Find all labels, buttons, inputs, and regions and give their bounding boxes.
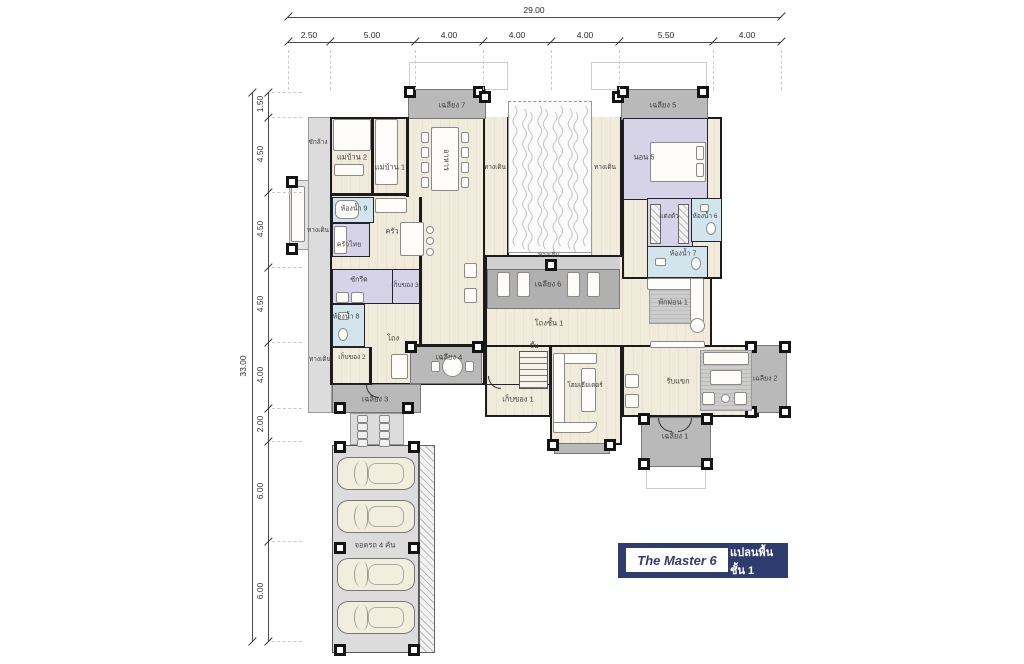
pool-corridor-left-floor bbox=[483, 117, 509, 257]
dining-chair bbox=[461, 162, 469, 173]
label-stairs-up: ขึ้น bbox=[530, 344, 539, 351]
title-plan-label: แปลนพื้นชั้น 1 bbox=[730, 543, 788, 578]
grid-guide bbox=[272, 408, 302, 409]
washer bbox=[336, 292, 349, 303]
room-storage2 bbox=[332, 347, 371, 385]
label-walkway-pool-left: ทางเดิน bbox=[484, 165, 506, 172]
label-bath9: ห้องน้ำ 9 bbox=[341, 206, 368, 213]
column bbox=[479, 91, 491, 103]
column bbox=[334, 402, 346, 414]
living-console bbox=[650, 341, 705, 348]
column bbox=[697, 86, 709, 98]
grid-guide bbox=[272, 342, 302, 343]
top-dim-seg-4: 4.00 bbox=[509, 30, 526, 40]
grid-guide bbox=[272, 92, 302, 93]
kitchen-island bbox=[400, 222, 424, 256]
pillow-bedroom5 bbox=[696, 146, 704, 160]
stepping-stone bbox=[357, 431, 368, 439]
roof-outline-left bbox=[409, 62, 508, 90]
stepping-stone bbox=[379, 431, 390, 439]
car-1 bbox=[337, 457, 415, 490]
top-dim-seg-3: 4.00 bbox=[441, 30, 458, 40]
room-bath8 bbox=[332, 304, 365, 347]
label-hall1: โถงชั้น 1 bbox=[535, 319, 564, 327]
porch4-chair bbox=[465, 361, 474, 372]
column bbox=[402, 402, 414, 414]
column bbox=[604, 439, 616, 451]
stepping-stone bbox=[357, 423, 368, 431]
hall-armchair bbox=[464, 288, 477, 303]
grid-guide bbox=[415, 50, 416, 90]
kitchen-stool bbox=[426, 226, 434, 234]
lounge-chair bbox=[517, 272, 530, 297]
wall-maid-partition-2 bbox=[406, 117, 409, 197]
toilet-bath8 bbox=[338, 328, 348, 341]
label-porch2: เฉลียง 2 bbox=[753, 376, 778, 383]
grid-guide bbox=[713, 50, 714, 90]
label-walkway-left-upper: ทางเดิน bbox=[307, 228, 329, 235]
grid-guide bbox=[272, 192, 302, 193]
top-dim-seg-1: 2.50 bbox=[301, 30, 318, 40]
label-bed5: นอน 5 bbox=[633, 153, 654, 161]
toilet-bath7 bbox=[691, 257, 701, 270]
sink-bath6 bbox=[700, 204, 709, 212]
staircase bbox=[519, 351, 548, 389]
label-storage3: เก็บของ 3 bbox=[391, 283, 418, 290]
label-porch7: เฉลียง 7 bbox=[439, 101, 466, 109]
floor-plan-canvas: 29.00 2.50 5.00 4.00 4.00 4.00 5.50 4.00… bbox=[0, 0, 1024, 664]
column bbox=[779, 341, 791, 353]
wall-maid-bottom bbox=[330, 193, 408, 196]
side-corridor bbox=[308, 117, 332, 413]
dining-chair bbox=[421, 177, 429, 188]
dining-chair bbox=[461, 147, 469, 158]
label-relax1: พักผ่อน 1 bbox=[658, 298, 688, 306]
grid-guide bbox=[272, 541, 302, 542]
label-storage1: เก็บของ 1 bbox=[502, 395, 533, 403]
living-sofa bbox=[703, 352, 749, 365]
column bbox=[408, 542, 420, 554]
label-ironing: ซักรีด bbox=[350, 277, 367, 284]
wall-storage2-side bbox=[369, 347, 372, 385]
stepping-stone bbox=[379, 423, 390, 431]
left-dim-seg-1: 1.50 bbox=[255, 96, 265, 113]
living-armchair bbox=[702, 392, 715, 405]
column bbox=[408, 644, 420, 656]
ht-sofa-bottom bbox=[553, 422, 597, 433]
left-dim-seg-6: 2.00 bbox=[255, 416, 265, 433]
home-theater-bay bbox=[554, 443, 610, 454]
label-porch6: เฉลียง 6 bbox=[535, 280, 562, 288]
column bbox=[405, 341, 417, 353]
hall-desk bbox=[391, 354, 408, 379]
garage-hatch-strip bbox=[419, 445, 435, 653]
title-name: The Master 6 bbox=[626, 548, 728, 572]
stepping-stone bbox=[379, 415, 390, 423]
car-3 bbox=[337, 558, 415, 591]
label-bath8: ห้องน้ำ 8 bbox=[333, 314, 360, 321]
grid-guide bbox=[781, 50, 782, 90]
grid-guide bbox=[483, 50, 484, 90]
label-pantry: ครัว bbox=[385, 227, 398, 235]
wall-maid-partition-1 bbox=[371, 117, 374, 195]
hall-armchair bbox=[464, 263, 477, 278]
roof-outline-right bbox=[591, 62, 707, 90]
title-block: The Master 6 แปลนพื้นชั้น 1 bbox=[618, 543, 788, 578]
column bbox=[701, 458, 713, 470]
column bbox=[334, 441, 346, 453]
column bbox=[334, 644, 346, 656]
top-dim-seg-6: 5.50 bbox=[658, 30, 675, 40]
wardrobe bbox=[650, 204, 661, 244]
dresser-maid2 bbox=[334, 164, 364, 176]
kitchen-stool bbox=[426, 237, 434, 245]
top-segment-dim-line bbox=[288, 42, 781, 43]
label-home-theater: โฮมเธียเตอร์ bbox=[567, 383, 603, 390]
living-armchair bbox=[734, 392, 747, 405]
relax-sofa-end bbox=[690, 318, 705, 333]
outdoor-counter bbox=[291, 186, 305, 242]
label-dressing: แต่งตัว bbox=[659, 214, 678, 221]
dining-chair bbox=[461, 177, 469, 188]
relax-sofa-right bbox=[690, 278, 704, 322]
label-hall: โถง bbox=[387, 334, 399, 342]
living-side-table bbox=[721, 394, 730, 403]
dining-chair bbox=[461, 132, 469, 143]
label-parking: จอดรถ 4 คัน bbox=[355, 541, 396, 549]
pool-water bbox=[508, 101, 592, 253]
column bbox=[334, 542, 346, 554]
column bbox=[286, 176, 298, 188]
top-total-dim-line bbox=[288, 17, 781, 18]
top-dim-seg-7: 4.00 bbox=[739, 30, 756, 40]
grid-guide bbox=[272, 267, 302, 268]
left-total-dim-line bbox=[252, 92, 253, 641]
roof-outline-porch1 bbox=[646, 466, 706, 489]
ht-sofa-left bbox=[553, 353, 565, 433]
stepping-stone bbox=[357, 415, 368, 423]
left-total-dim-label: 33.00 bbox=[238, 355, 248, 376]
grid-guide bbox=[272, 641, 302, 642]
label-maid2: แม่บ้าน 2 bbox=[337, 153, 367, 161]
grid-guide bbox=[288, 50, 289, 90]
thai-kitchen-counter bbox=[334, 226, 347, 254]
column bbox=[472, 341, 484, 353]
column bbox=[779, 406, 791, 418]
living-coffee-table bbox=[710, 370, 742, 385]
washer bbox=[351, 292, 364, 303]
living-corner-chair bbox=[625, 374, 639, 388]
left-dim-seg-3: 4.50 bbox=[255, 221, 265, 238]
stepping-stone bbox=[379, 439, 390, 447]
label-bath6: ห้องน้ำ 6 bbox=[693, 214, 718, 221]
grid-guide bbox=[272, 117, 302, 118]
column bbox=[638, 458, 650, 470]
car-4 bbox=[337, 601, 415, 634]
label-walkway-left-lower: ทางเดิน bbox=[309, 357, 331, 364]
column bbox=[701, 413, 713, 425]
bed-maid2 bbox=[333, 119, 371, 151]
lounge-chair bbox=[587, 272, 600, 297]
column bbox=[547, 439, 559, 451]
label-living: รับแขก bbox=[666, 377, 689, 385]
label-porch3: เฉลียง 3 bbox=[362, 395, 389, 403]
label-bath7: ห้องน้ำ 7 bbox=[670, 251, 697, 258]
toilet-bath6 bbox=[706, 222, 716, 235]
top-dim-seg-2: 5.00 bbox=[364, 30, 381, 40]
bed-maid1 bbox=[375, 119, 398, 185]
left-dim-seg-7: 6.00 bbox=[255, 483, 265, 500]
grid-guide bbox=[330, 50, 331, 90]
living-corner-chair bbox=[625, 394, 639, 408]
kitchen-stool bbox=[426, 248, 434, 256]
label-storage2: เก็บของ 2 bbox=[338, 355, 365, 362]
car-2 bbox=[337, 500, 415, 533]
dining-chair bbox=[421, 147, 429, 158]
left-dim-seg-8: 6.00 bbox=[255, 583, 265, 600]
column bbox=[286, 243, 298, 255]
column bbox=[408, 441, 420, 453]
left-dim-seg-5: 4.00 bbox=[255, 367, 265, 384]
grid-guide bbox=[619, 50, 620, 90]
dining-chair bbox=[421, 132, 429, 143]
kitchen-counter bbox=[375, 198, 407, 213]
wall-service-hall bbox=[419, 197, 422, 347]
label-maid1: แม่บ้าน 1 bbox=[375, 163, 405, 171]
lounge-chair bbox=[497, 272, 510, 297]
lounge-chair bbox=[567, 272, 580, 297]
label-laundry-yard: ซักล้าง bbox=[308, 140, 327, 147]
stepping-stone bbox=[357, 439, 368, 447]
column bbox=[545, 259, 557, 271]
left-dim-seg-4: 4.50 bbox=[255, 296, 265, 313]
grid-guide bbox=[272, 441, 302, 442]
pool-corridor-right-floor bbox=[591, 117, 622, 257]
column bbox=[638, 413, 650, 425]
label-walkway-pool-right: ทางเดิน bbox=[594, 165, 616, 172]
dining-chair bbox=[421, 162, 429, 173]
label-dining: อาหาร bbox=[442, 149, 450, 171]
top-dim-seg-5: 4.00 bbox=[577, 30, 594, 40]
left-segment-dim-line bbox=[268, 92, 269, 641]
left-dim-seg-2: 4.50 bbox=[255, 146, 265, 163]
pillow-bedroom5 bbox=[696, 163, 704, 177]
label-porch5: เฉลียง 5 bbox=[650, 101, 677, 109]
ht-screen bbox=[581, 368, 596, 412]
sink-bath7 bbox=[655, 258, 666, 266]
label-porch4: เฉลียง 4 bbox=[436, 353, 463, 361]
porch4-chair bbox=[431, 361, 440, 372]
label-walkway-pool-bottom: ทางเดิน bbox=[538, 253, 560, 260]
wardrobe bbox=[678, 204, 689, 244]
label-porch1: เฉลียง 1 bbox=[662, 432, 689, 440]
grid-guide bbox=[551, 50, 552, 90]
top-total-dim-label: 29.00 bbox=[523, 5, 544, 15]
label-thai-kitchen: ครัวไทย bbox=[337, 242, 362, 249]
